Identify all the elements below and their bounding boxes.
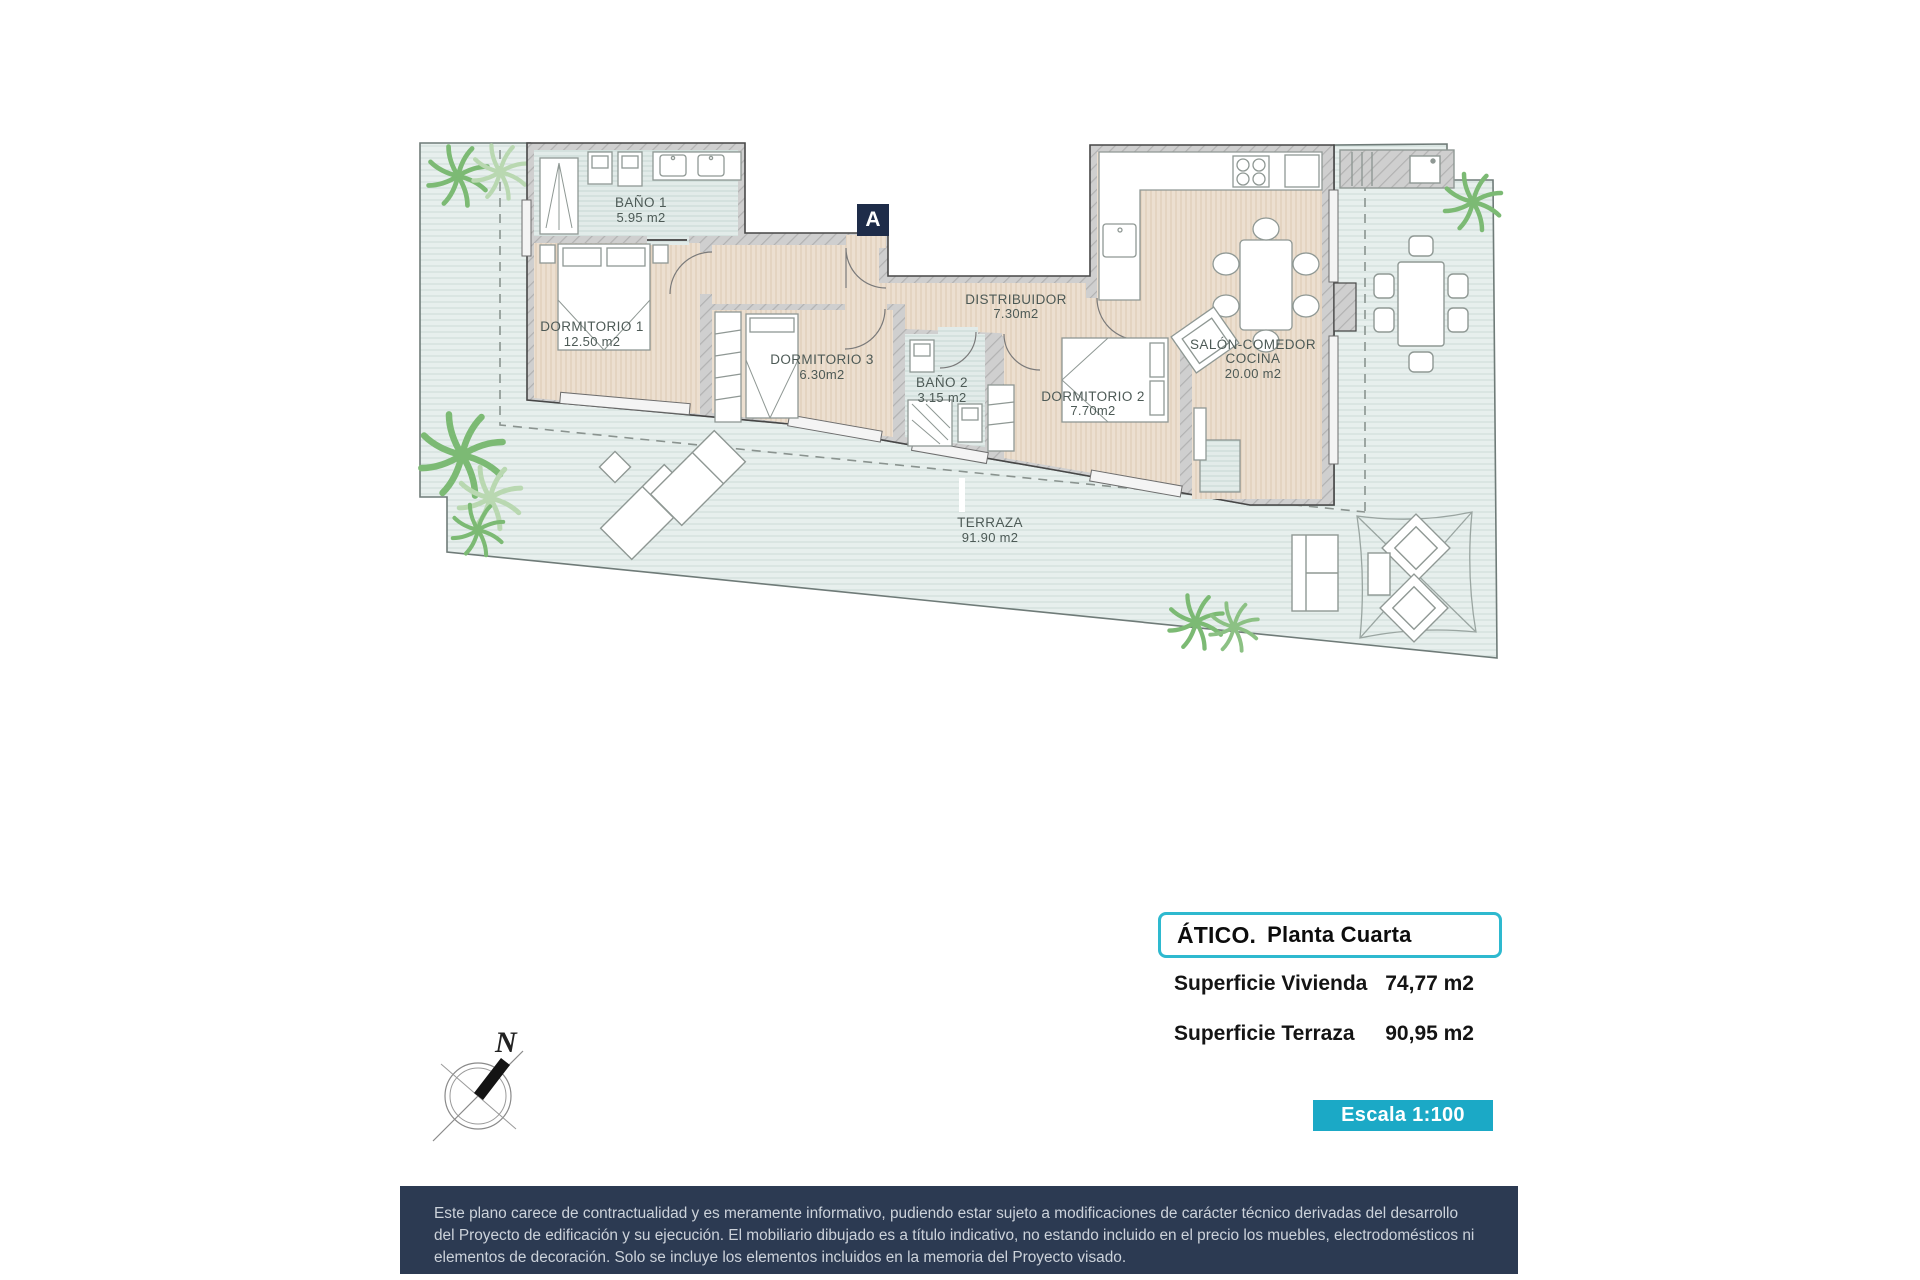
svg-text:COCINA: COCINA: [1226, 351, 1281, 366]
facade-pillar: [1334, 283, 1356, 331]
dormitorio3-furniture: [715, 312, 798, 422]
section-badge-a: A: [857, 204, 889, 236]
label-banyo1: BAÑO 1: [615, 195, 667, 210]
side-table-icon: [1368, 553, 1390, 595]
label-salon: SALÓN-COMEDOR: [1190, 337, 1316, 352]
disclaimer-line-3: elementos de decoración. Solo se incluye…: [434, 1247, 1490, 1269]
svg-text:12.50 m2: 12.50 m2: [564, 334, 621, 349]
disclaimer-line-2: del Proyecto de edificación y su ejecuci…: [434, 1225, 1490, 1247]
scale-badge: Escala 1:100: [1313, 1100, 1493, 1131]
compass-north-label: N: [494, 1026, 518, 1059]
plan-title-box: ÁTICO. Planta Cuarta: [1158, 912, 1502, 958]
outdoor-sofa-icon: [1292, 535, 1338, 611]
label-distribuidor: DISTRIBUIDOR: [965, 292, 1067, 307]
surface-terraza-value: 90,95 m2: [1385, 1022, 1474, 1046]
label-dormitorio1: DORMITORIO 1: [540, 319, 644, 334]
surface-row-vivienda: Superficie Vivienda 74,77 m2: [1174, 972, 1474, 996]
floorplan-page: BAÑO 1 5.95 m2 DORMITORIO 1 12.50 m2 DOR…: [0, 0, 1920, 1280]
svg-text:3.15 m2: 3.15 m2: [917, 390, 966, 405]
disclaimer-line-1: Este plano carece de contractualidad y e…: [434, 1203, 1490, 1225]
svg-text:7.70m2: 7.70m2: [1070, 403, 1115, 418]
svg-text:7.30m2: 7.30m2: [993, 306, 1038, 321]
disclaimer-bar: Este plano carece de contractualidad y e…: [400, 1186, 1518, 1274]
floorplan-drawing: BAÑO 1 5.95 m2 DORMITORIO 1 12.50 m2 DOR…: [0, 0, 1920, 1280]
compass-needle-icon: [474, 1058, 510, 1100]
compass: N: [433, 1026, 523, 1141]
surface-vivienda-value: 74,77 m2: [1385, 972, 1474, 996]
svg-text:91.90 m2: 91.90 m2: [962, 530, 1019, 545]
label-terraza: TERRAZA: [957, 515, 1023, 530]
surface-terraza-label: Superficie Terraza: [1174, 1022, 1355, 1046]
label-dormitorio3: DORMITORIO 3: [770, 352, 874, 367]
svg-text:5.95 m2: 5.95 m2: [616, 210, 665, 225]
tv-unit: [1194, 408, 1206, 460]
label-banyo2: BAÑO 2: [916, 375, 968, 390]
surface-vivienda-label: Superficie Vivienda: [1174, 972, 1367, 996]
plan-title-rest: Planta Cuarta: [1267, 922, 1411, 948]
plan-title-bold: ÁTICO.: [1177, 922, 1256, 949]
surface-row-terraza: Superficie Terraza 90,95 m2: [1174, 1022, 1474, 1046]
svg-text:20.00 m2: 20.00 m2: [1225, 366, 1282, 381]
terrace-marker: [959, 478, 965, 512]
svg-text:6.30m2: 6.30m2: [799, 367, 844, 382]
outdoor-kitchen-counter: [1340, 150, 1454, 188]
label-dormitorio2: DORMITORIO 2: [1041, 389, 1145, 404]
